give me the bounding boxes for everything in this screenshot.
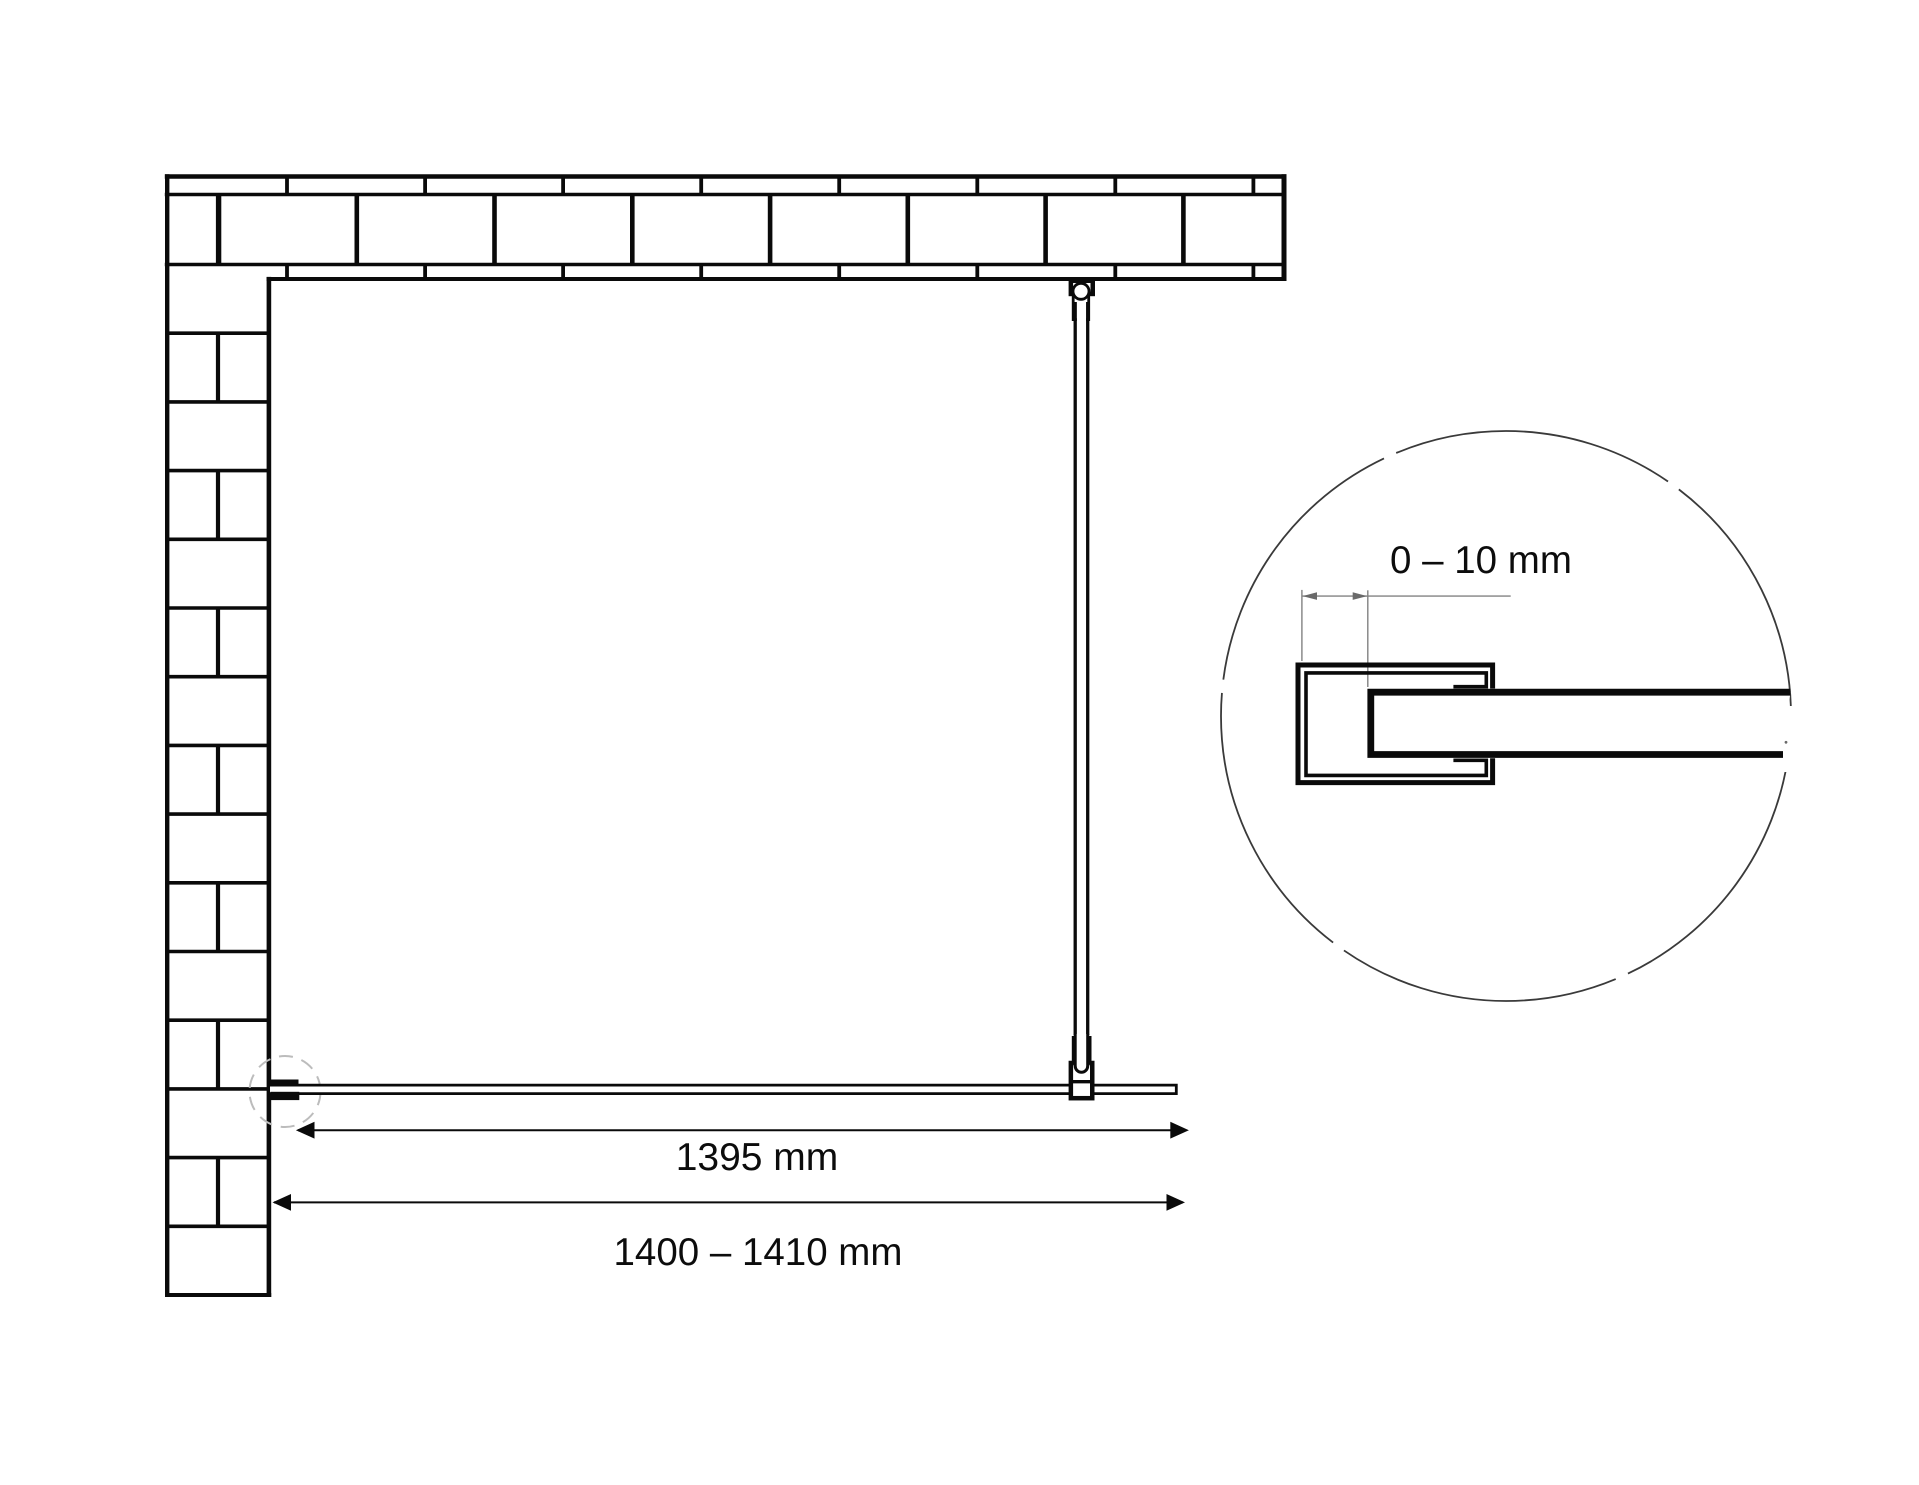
svg-text:0 – 10 mm: 0 – 10 mm bbox=[1390, 539, 1572, 582]
svg-text:1395 mm: 1395 mm bbox=[676, 1136, 839, 1179]
svg-text:1400 – 1410 mm: 1400 – 1410 mm bbox=[614, 1231, 903, 1274]
